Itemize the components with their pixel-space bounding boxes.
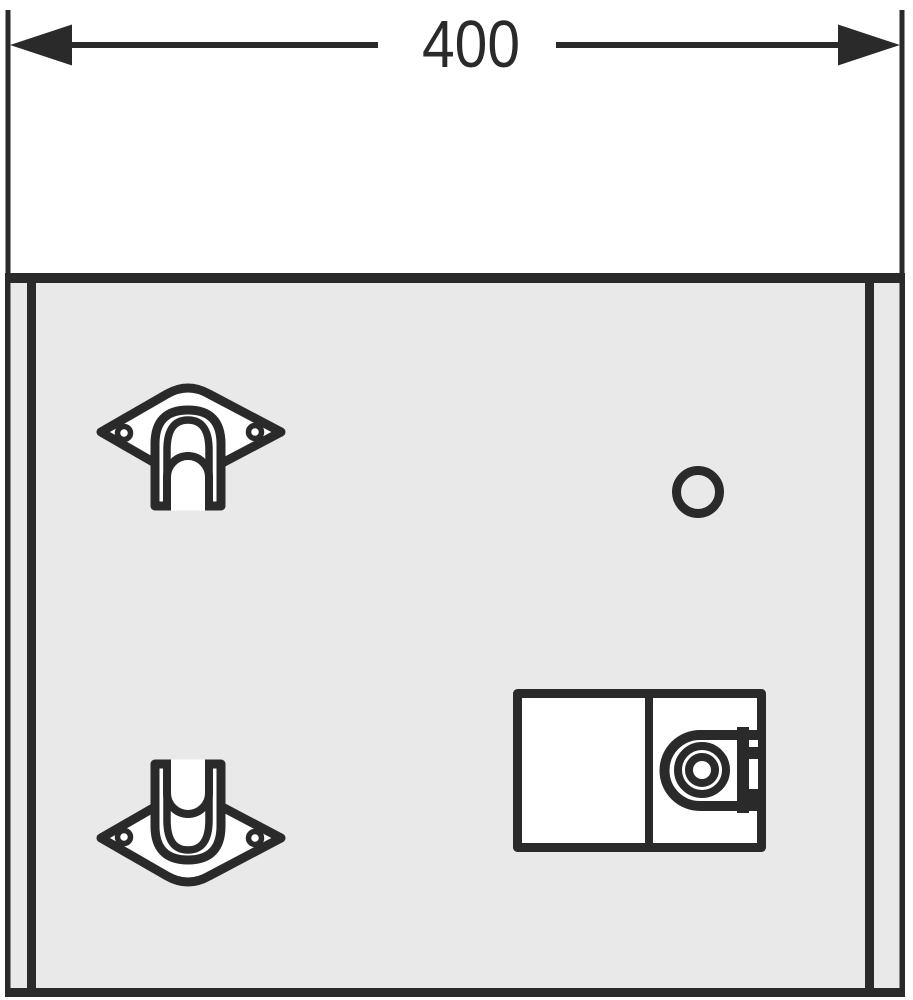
body-top-edge	[5, 273, 905, 283]
body-left-edge	[5, 273, 11, 997]
rear-panel-surface	[5, 273, 905, 997]
dimension-value: 400	[422, 7, 520, 81]
side-fold-line-right	[865, 283, 874, 988]
side-fold-line-left	[27, 283, 36, 988]
body-bottom-edge	[5, 988, 905, 997]
lock-tab-top	[749, 747, 764, 759]
extension-line-left	[6, 10, 11, 278]
bracket-slot	[167, 456, 209, 511]
bracket-screw-hole-right	[249, 426, 262, 439]
cabinet-rear-view-drawing: 400	[0, 0, 913, 1000]
dimension-line-right	[556, 42, 840, 48]
lock-tab-bottom	[749, 789, 764, 801]
lock-mount-bar	[737, 727, 749, 813]
arrowhead-left-icon	[10, 25, 72, 66]
lock-cylinder-inner	[689, 757, 715, 783]
cabinet-body	[5, 273, 905, 997]
body-right-edge	[900, 273, 906, 997]
dimension-line-left	[68, 42, 378, 48]
extension-line-right	[900, 10, 905, 278]
arrowhead-right-icon	[838, 25, 900, 66]
dimension-annotation: 400	[6, 7, 905, 278]
service-box	[518, 689, 765, 852]
bracket-screw-hole-left	[118, 427, 131, 440]
technical-drawing-page: 400	[0, 0, 913, 1000]
